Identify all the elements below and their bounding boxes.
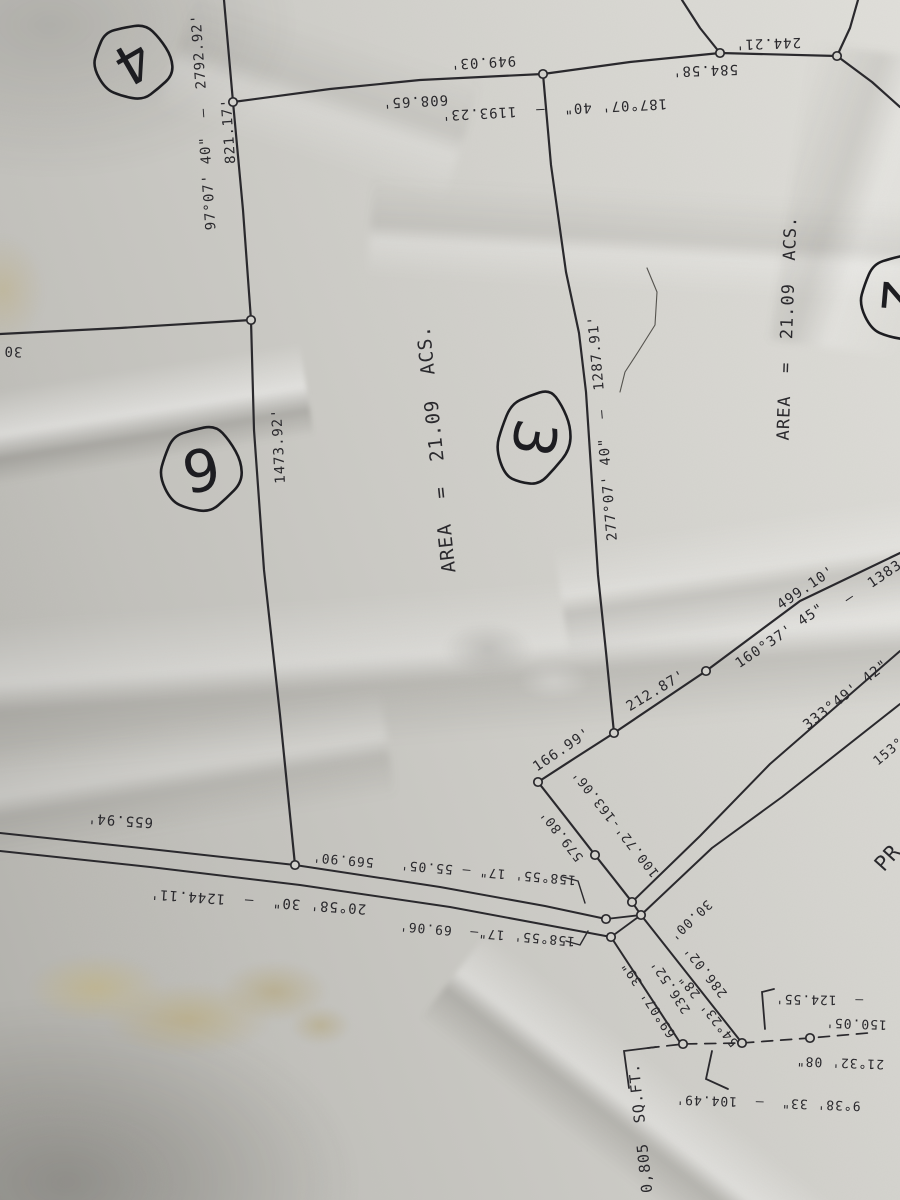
measurement-label: 150.05' [825, 1015, 887, 1030]
measurement-label: 158°55' 17"— 69.06' [398, 919, 575, 947]
measurement-label: 821.17' [220, 98, 239, 165]
measurement-label: AREA = 21.09 ACS. [776, 215, 801, 440]
measurement-labels-layer: 97°07' 40" — 2792.92'821.17'949.03'608.6… [0, 0, 900, 1200]
measurement-label: AREA = 21.09 ACS. [415, 324, 460, 573]
measurement-label: 21°32' 08" [796, 1054, 885, 1070]
measurement-label: 158°55' 17" — 55.05' 569.90' [312, 850, 577, 886]
plat-photo: 4632 97°07' 40" — 2792.92'821.17'949.03'… [0, 0, 900, 1200]
measurement-label: 579.80' [538, 807, 586, 864]
measurement-label: 30.00' [666, 897, 714, 943]
measurement-label: 244.21' [735, 35, 801, 51]
measurement-label: 30 [3, 344, 23, 359]
measurement-label: 655.94' [87, 811, 154, 830]
measurement-label: 0,805 SQ.FT. [627, 1062, 656, 1193]
measurement-label: 212.87' [624, 668, 688, 714]
measurement-label: 9°38' 33" — 104.49' [675, 1092, 861, 1111]
measurement-label: 20°58' 30" — 1244.11' [149, 886, 366, 915]
measurement-label: 1473.92' [270, 408, 288, 484]
measurement-label: 949.03' [450, 53, 517, 70]
measurement-label: 277°07' 40" — 1287.91' [586, 315, 620, 542]
measurement-label: 166.99' [531, 726, 594, 775]
measurement-label: 333°49' 42" [801, 658, 891, 733]
measurement-label: 584.58' [672, 62, 738, 78]
measurement-label: 97°07' 40" — 2792.92' [189, 13, 218, 230]
measurement-label: 100.72'-163.06' [570, 767, 662, 879]
measurement-label: 608.65' [382, 92, 449, 109]
measurement-label: — 1383.0 [842, 547, 900, 606]
measurement-label: 187°07' 40" — 1193.23' [441, 96, 668, 122]
measurement-label: — 124.55' [775, 992, 863, 1007]
measurement-label: 160°37' 45" [733, 601, 827, 671]
measurement-label: PR [871, 841, 900, 875]
measurement-label: 153° [871, 736, 900, 769]
measurement-label: 499.10' [775, 564, 838, 613]
